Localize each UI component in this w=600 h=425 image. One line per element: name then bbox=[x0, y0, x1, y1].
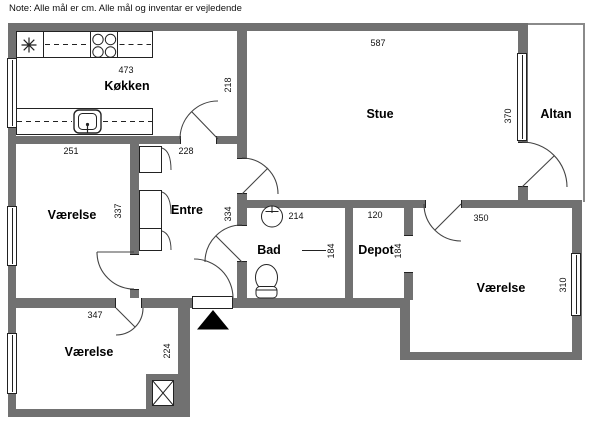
dim-depot-width: 120 bbox=[367, 210, 382, 220]
room-label-vaerelse3: Værelse bbox=[65, 345, 114, 359]
floor-plan: Note: Alle mål er cm. Alle mål og invent… bbox=[0, 0, 600, 425]
dim-vaerelse3-depth: 224 bbox=[162, 343, 172, 358]
dim-depot-depth: 184 bbox=[393, 243, 403, 258]
door-swing-vaerelse1 bbox=[97, 252, 134, 289]
entrance-arrow-icon bbox=[197, 310, 229, 330]
dim-vaerelse3-width: 347 bbox=[87, 310, 102, 320]
duct-shaft-icon bbox=[153, 381, 174, 406]
door-swing-vaerelse3 bbox=[116, 308, 143, 335]
room-label-vaerelse1: Værelse bbox=[48, 208, 97, 222]
room-label-depot: Depot bbox=[358, 243, 393, 257]
dim-bad-width: 214 bbox=[288, 211, 303, 221]
room-label-vaerelse2: Værelse bbox=[477, 281, 526, 295]
closet bbox=[140, 147, 162, 251]
kitchen-sink-icon bbox=[74, 110, 101, 133]
door-swing-stue bbox=[242, 158, 278, 194]
door-swing-bad bbox=[205, 225, 242, 262]
dim-vaerelse2-width: 350 bbox=[473, 213, 488, 223]
room-label-bad: Bad bbox=[257, 243, 281, 257]
dim-kokken-depth: 218 bbox=[223, 77, 233, 92]
door-swing-vaerelse2 bbox=[424, 204, 461, 241]
dim-kokken-width: 473 bbox=[118, 65, 133, 75]
room-label-altan: Altan bbox=[540, 107, 571, 121]
cooktop-light-icon bbox=[22, 38, 37, 53]
dim-vaerelse2-depth: 310 bbox=[558, 277, 568, 292]
dim-stue-depth: 370 bbox=[503, 108, 513, 123]
door-swing-entrance bbox=[194, 259, 233, 298]
dim-bad-depth: 184 bbox=[326, 243, 336, 258]
door-swing-kitchen bbox=[180, 101, 218, 139]
plan-note: Note: Alle mål er cm. Alle mål og invent… bbox=[9, 3, 242, 14]
dim-vaerelse1-width: 251 bbox=[63, 146, 78, 156]
room-label-entre: Entre bbox=[171, 203, 203, 217]
dim-vaerelse1-depth: 337 bbox=[113, 203, 123, 218]
room-label-stue: Stue bbox=[366, 107, 393, 121]
washbasin-icon bbox=[262, 206, 283, 227]
closet-door-swings bbox=[162, 148, 171, 250]
room-label-kokken: Køkken bbox=[104, 79, 149, 93]
dim-stue-width: 587 bbox=[370, 38, 385, 48]
door-swing-altan bbox=[522, 142, 567, 187]
dim-entre-depth: 334 bbox=[223, 206, 233, 221]
toilet-icon bbox=[256, 265, 278, 299]
dim-entre-width: 228 bbox=[178, 146, 193, 156]
kitchen-counter-north bbox=[17, 32, 153, 58]
